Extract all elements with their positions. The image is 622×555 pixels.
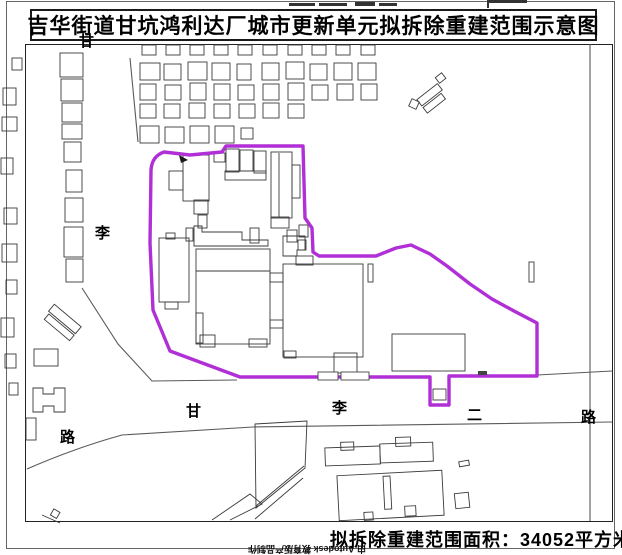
road-label-bottom-2: 李 bbox=[332, 401, 347, 416]
margin-buildings bbox=[1, 58, 22, 395]
road-tick-mark bbox=[478, 371, 487, 375]
road-label-bottom-1: 甘 bbox=[186, 404, 201, 419]
gate-structure bbox=[341, 372, 369, 380]
road-label-bottom-4: 路 bbox=[581, 410, 596, 425]
gate-structure bbox=[318, 372, 338, 380]
area-note: 拟拆除重建范围面积：34052平方米 bbox=[330, 526, 622, 552]
map-canvas bbox=[0, 0, 622, 555]
road-label-left-1: 甘 bbox=[79, 34, 94, 49]
road-label-left-3: 路 bbox=[60, 430, 75, 445]
map-sheet: 吉华街道甘坑鸿利达厂城市更新单元拟拆除重建范围示意图 bbox=[0, 0, 622, 555]
factory-buildings bbox=[159, 149, 534, 400]
village-grid bbox=[140, 45, 456, 143]
demolition-boundary bbox=[150, 146, 537, 405]
boundary-outline bbox=[150, 146, 537, 405]
road-label-bottom-3: 二 bbox=[467, 408, 482, 423]
autodesk-watermark: 由 Autodesk 教育版产品制作 bbox=[248, 543, 366, 555]
south-buildings bbox=[42, 421, 470, 523]
west-roadside-buildings bbox=[26, 53, 83, 440]
road-label-left-2: 李 bbox=[95, 226, 110, 241]
roads bbox=[27, 44, 612, 521]
top-annotation-marks bbox=[289, 0, 527, 8]
